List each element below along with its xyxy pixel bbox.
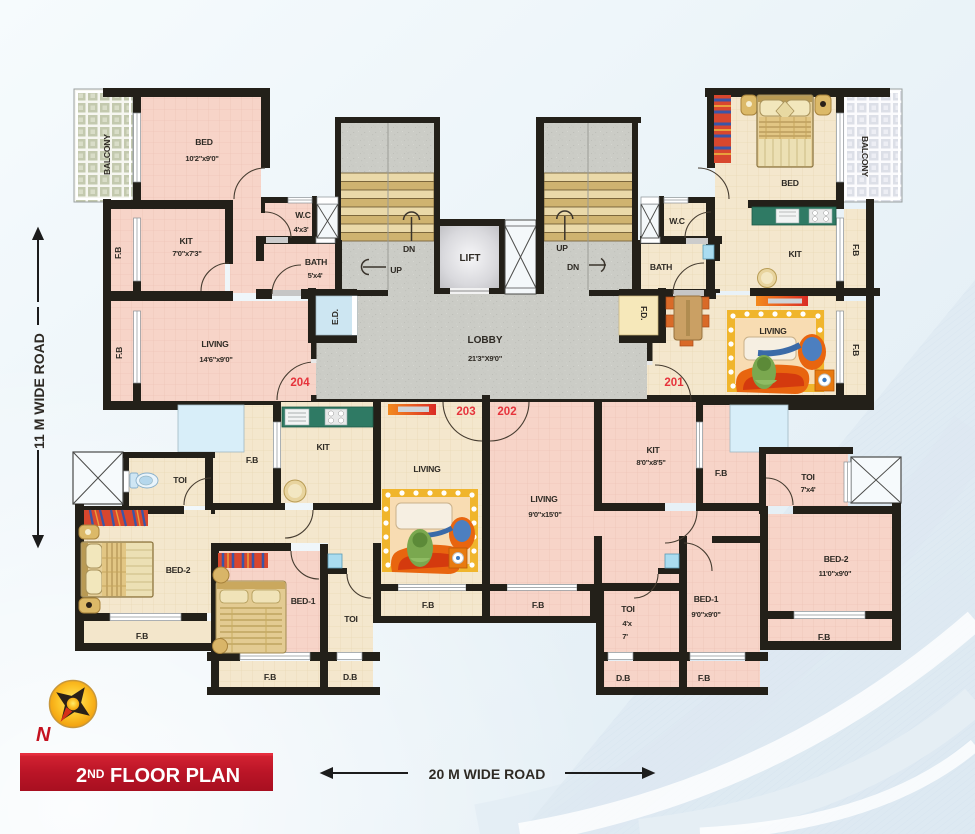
svg-text:F.B: F.B — [136, 631, 148, 641]
svg-text:UP: UP — [556, 243, 568, 253]
svg-text:UP: UP — [390, 265, 402, 275]
svg-text:LIVING: LIVING — [530, 494, 558, 504]
svg-text:D.B: D.B — [616, 673, 630, 683]
svg-text:BALCONY: BALCONY — [860, 136, 870, 177]
svg-text:BATH: BATH — [305, 257, 327, 267]
svg-text:TOI: TOI — [344, 614, 357, 624]
svg-text:4'x3': 4'x3' — [294, 225, 309, 234]
svg-text:F.B: F.B — [532, 600, 544, 610]
svg-text:BED-2: BED-2 — [166, 565, 191, 575]
svg-text:KIT: KIT — [316, 442, 330, 452]
svg-text:7'0"x7'3": 7'0"x7'3" — [172, 249, 202, 258]
svg-text:7': 7' — [622, 632, 628, 641]
svg-text:BED: BED — [195, 137, 212, 147]
svg-text:BED-1: BED-1 — [694, 594, 719, 604]
svg-text:202: 202 — [497, 406, 516, 418]
svg-text:9'0"x9'0": 9'0"x9'0" — [691, 610, 721, 619]
svg-text:LOBBY: LOBBY — [468, 335, 503, 346]
svg-text:5'x4': 5'x4' — [308, 271, 323, 280]
svg-text:BATH: BATH — [650, 262, 672, 272]
svg-text:F.B: F.B — [698, 673, 710, 683]
svg-text:F.B: F.B — [422, 600, 434, 610]
svg-text:11 M WIDE ROAD: 11 M WIDE ROAD — [31, 333, 47, 449]
svg-text:201: 201 — [664, 377, 684, 389]
svg-text:7'x4': 7'x4' — [801, 485, 816, 494]
svg-text:4'x: 4'x — [622, 619, 632, 628]
svg-text:204: 204 — [290, 377, 310, 389]
svg-text:KIT: KIT — [788, 249, 802, 259]
svg-text:TOI: TOI — [621, 604, 634, 614]
svg-text:9'0"x15'0": 9'0"x15'0" — [528, 510, 562, 519]
svg-text:14'6"x9'0": 14'6"x9'0" — [199, 355, 233, 364]
svg-text:20 M WIDE ROAD: 20 M WIDE ROAD — [429, 766, 546, 782]
svg-text:F.B: F.B — [818, 632, 830, 642]
svg-text:KIT: KIT — [646, 445, 660, 455]
svg-text:E.D.: E.D. — [330, 309, 340, 325]
svg-text:BALCONY: BALCONY — [102, 134, 112, 175]
svg-text:F.B: F.B — [114, 347, 124, 359]
svg-text:LIFT: LIFT — [459, 253, 480, 264]
svg-text:F.D.: F.D. — [639, 306, 649, 320]
svg-text:BED-1: BED-1 — [291, 596, 316, 606]
svg-text:LIVING: LIVING — [413, 464, 441, 474]
svg-text:F.B: F.B — [113, 247, 123, 259]
svg-text:TOI: TOI — [173, 475, 186, 485]
svg-text:D.B: D.B — [343, 672, 357, 682]
svg-text:LIVING: LIVING — [201, 339, 229, 349]
svg-text:F.B: F.B — [851, 244, 861, 256]
svg-text:F.B: F.B — [264, 672, 276, 682]
svg-text:F.B: F.B — [246, 455, 258, 465]
svg-text:TOI: TOI — [801, 472, 814, 482]
svg-text:21'3"X9'0": 21'3"X9'0" — [468, 354, 503, 363]
svg-text:F.B: F.B — [851, 344, 861, 356]
svg-text:BED-2: BED-2 — [824, 554, 849, 564]
svg-text:LIVING: LIVING — [759, 326, 787, 336]
svg-text:BED: BED — [781, 178, 798, 188]
svg-text:W.C: W.C — [295, 210, 311, 220]
svg-text:DN: DN — [403, 244, 415, 254]
svg-text:F.B: F.B — [715, 468, 727, 478]
svg-text:W.C: W.C — [669, 216, 685, 226]
svg-text:11'0"x9'0": 11'0"x9'0" — [819, 569, 852, 578]
svg-text:203: 203 — [456, 406, 475, 418]
svg-text:DN: DN — [567, 262, 579, 272]
svg-text:N: N — [36, 724, 51, 746]
svg-text:8'0"x8'5": 8'0"x8'5" — [636, 458, 666, 467]
svg-text:10'2"x9'0": 10'2"x9'0" — [185, 154, 219, 163]
svg-text:KIT: KIT — [179, 236, 193, 246]
